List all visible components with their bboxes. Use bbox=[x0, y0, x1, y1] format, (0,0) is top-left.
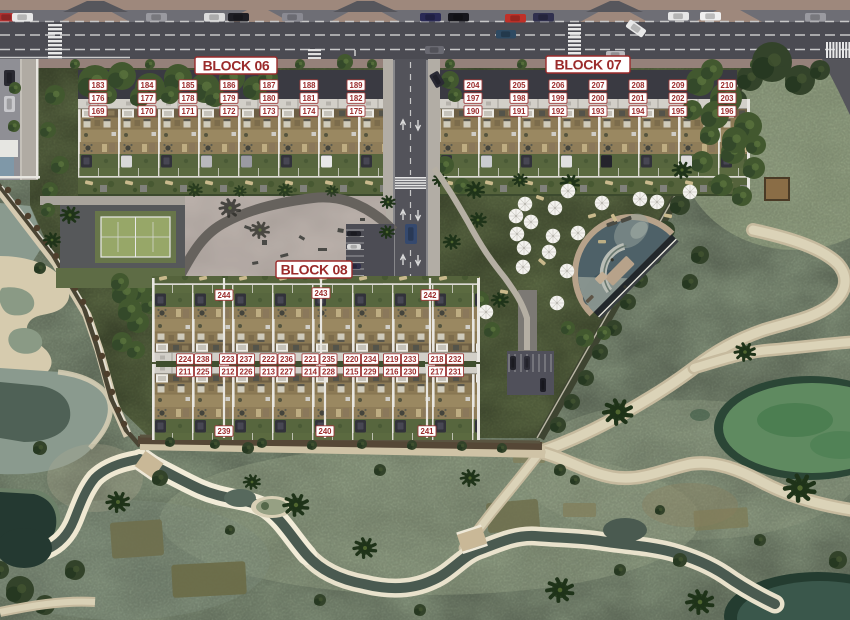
svg-text:177: 177 bbox=[140, 94, 153, 103]
svg-text:241: 241 bbox=[420, 427, 434, 436]
svg-text:223: 223 bbox=[221, 355, 235, 364]
svg-text:192: 192 bbox=[551, 107, 565, 116]
svg-text:187: 187 bbox=[262, 81, 275, 90]
svg-text:213: 213 bbox=[262, 367, 276, 376]
svg-text:BLOCK 08: BLOCK 08 bbox=[281, 262, 348, 278]
svg-text:191: 191 bbox=[512, 107, 526, 116]
svg-text:BLOCK 06: BLOCK 06 bbox=[203, 58, 270, 74]
svg-text:239: 239 bbox=[217, 427, 231, 436]
svg-text:230: 230 bbox=[403, 367, 417, 376]
svg-text:200: 200 bbox=[591, 94, 605, 103]
svg-text:231: 231 bbox=[448, 367, 462, 376]
svg-text:207: 207 bbox=[591, 81, 604, 90]
svg-text:199: 199 bbox=[551, 94, 565, 103]
svg-text:194: 194 bbox=[631, 107, 645, 116]
svg-text:225: 225 bbox=[196, 367, 210, 376]
svg-text:185: 185 bbox=[181, 81, 195, 90]
svg-text:178: 178 bbox=[181, 94, 195, 103]
svg-text:206: 206 bbox=[551, 81, 565, 90]
svg-text:224: 224 bbox=[178, 355, 192, 364]
svg-text:211: 211 bbox=[179, 367, 192, 376]
svg-text:218: 218 bbox=[430, 355, 444, 364]
svg-text:180: 180 bbox=[262, 94, 276, 103]
svg-text:210: 210 bbox=[720, 81, 734, 90]
svg-text:217: 217 bbox=[430, 367, 443, 376]
svg-text:193: 193 bbox=[591, 107, 605, 116]
svg-text:186: 186 bbox=[222, 81, 236, 90]
svg-text:215: 215 bbox=[345, 367, 359, 376]
svg-text:183: 183 bbox=[91, 81, 105, 90]
svg-text:242: 242 bbox=[423, 291, 437, 300]
svg-text:175: 175 bbox=[349, 107, 363, 116]
svg-text:214: 214 bbox=[304, 367, 318, 376]
svg-text:243: 243 bbox=[314, 289, 328, 298]
svg-text:196: 196 bbox=[720, 107, 734, 116]
svg-text:195: 195 bbox=[671, 107, 685, 116]
svg-text:171: 171 bbox=[181, 107, 195, 116]
svg-text:182: 182 bbox=[349, 94, 363, 103]
svg-text:244: 244 bbox=[217, 291, 231, 300]
svg-text:198: 198 bbox=[512, 94, 526, 103]
svg-text:227: 227 bbox=[280, 367, 293, 376]
svg-text:179: 179 bbox=[222, 94, 236, 103]
svg-text:212: 212 bbox=[221, 367, 235, 376]
svg-text:221: 221 bbox=[304, 355, 318, 364]
svg-text:220: 220 bbox=[345, 355, 359, 364]
svg-text:169: 169 bbox=[91, 107, 105, 116]
svg-text:201: 201 bbox=[631, 94, 645, 103]
svg-text:189: 189 bbox=[349, 81, 363, 90]
svg-text:203: 203 bbox=[720, 94, 734, 103]
svg-text:202: 202 bbox=[671, 94, 685, 103]
svg-text:234: 234 bbox=[363, 355, 377, 364]
svg-text:222: 222 bbox=[262, 355, 276, 364]
svg-text:240: 240 bbox=[318, 427, 332, 436]
svg-text:236: 236 bbox=[280, 355, 294, 364]
svg-text:237: 237 bbox=[239, 355, 252, 364]
svg-text:174: 174 bbox=[302, 107, 316, 116]
svg-text:233: 233 bbox=[403, 355, 417, 364]
svg-text:238: 238 bbox=[196, 355, 210, 364]
svg-text:184: 184 bbox=[140, 81, 154, 90]
svg-text:228: 228 bbox=[322, 367, 336, 376]
svg-text:190: 190 bbox=[466, 107, 480, 116]
svg-text:209: 209 bbox=[671, 81, 685, 90]
svg-text:232: 232 bbox=[448, 355, 462, 364]
svg-text:173: 173 bbox=[262, 107, 276, 116]
svg-text:170: 170 bbox=[140, 107, 154, 116]
svg-text:176: 176 bbox=[91, 94, 105, 103]
svg-text:188: 188 bbox=[302, 81, 316, 90]
svg-text:216: 216 bbox=[385, 367, 399, 376]
svg-text:229: 229 bbox=[363, 367, 377, 376]
svg-text:208: 208 bbox=[631, 81, 645, 90]
svg-text:204: 204 bbox=[466, 81, 480, 90]
svg-text:181: 181 bbox=[302, 94, 316, 103]
svg-text:219: 219 bbox=[385, 355, 399, 364]
svg-text:197: 197 bbox=[466, 94, 479, 103]
svg-text:226: 226 bbox=[239, 367, 253, 376]
svg-text:205: 205 bbox=[512, 81, 526, 90]
svg-text:172: 172 bbox=[222, 107, 236, 116]
svg-text:BLOCK 07: BLOCK 07 bbox=[555, 57, 622, 73]
svg-text:235: 235 bbox=[322, 355, 336, 364]
